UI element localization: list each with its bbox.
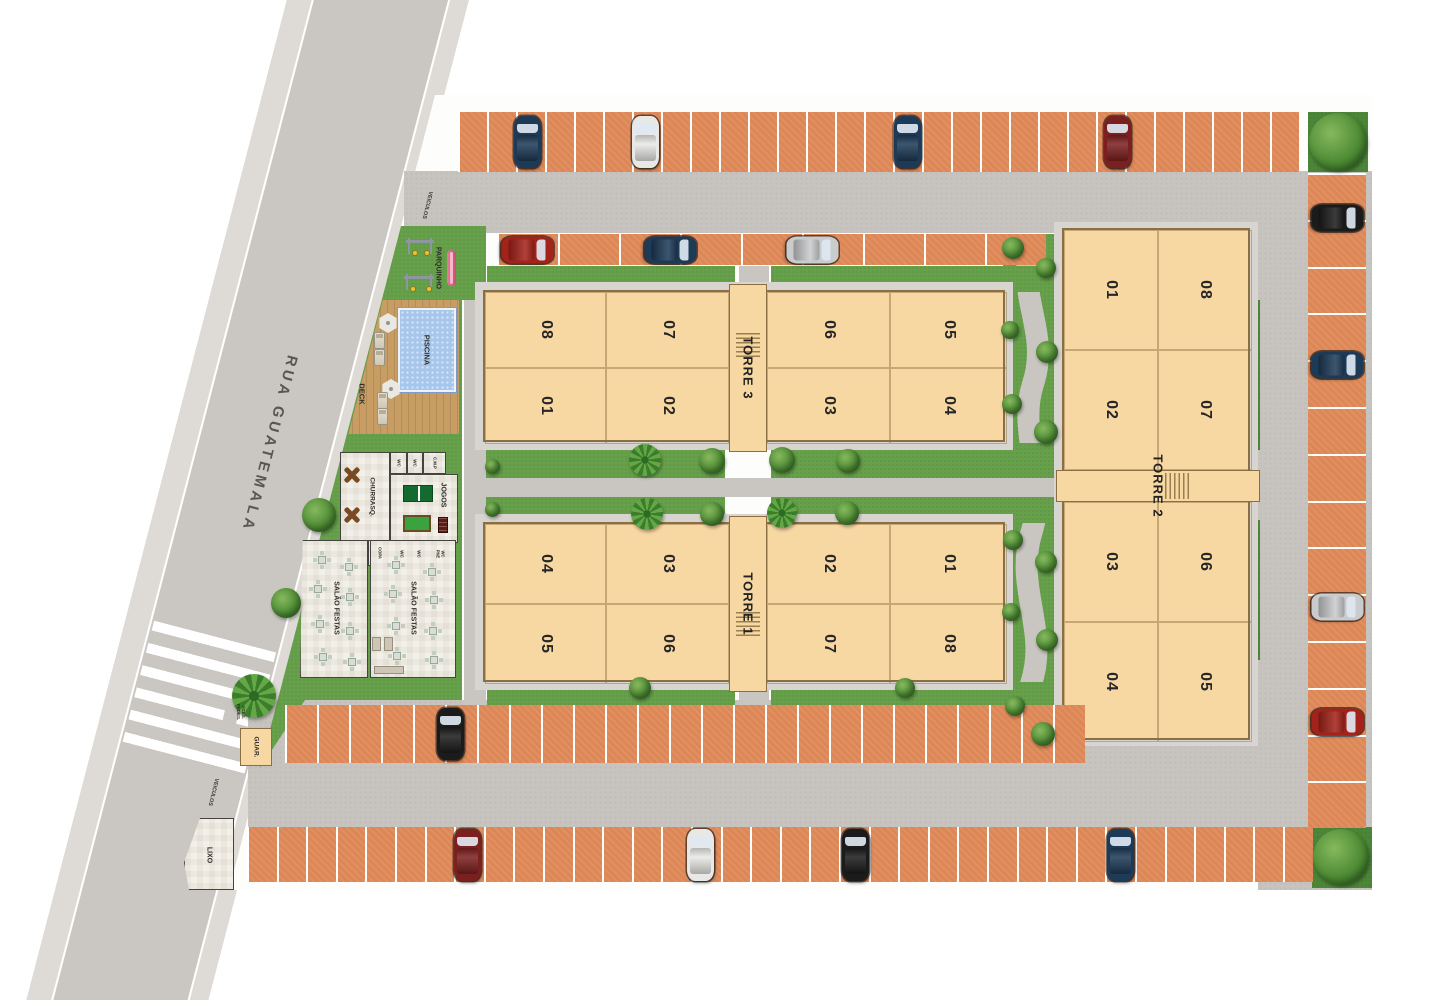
parking-stall [829,705,861,763]
parking-stall [381,705,413,763]
parking-stall [509,705,541,763]
site-plan: RUA GUATEMALA 08 07 06 05 01 02 03 04 [0,0,1439,1000]
tree-icon [1002,237,1024,259]
car-icon [842,829,869,881]
tree-icon [1036,629,1058,651]
parking-stall [893,705,925,763]
parking-stall [632,827,662,882]
parking-stall [980,112,1009,172]
car-icon [1107,829,1134,881]
car-icon [454,829,481,881]
wc-label: WC [417,550,422,558]
tree-icon [485,502,500,517]
parking-stall [1308,501,1366,548]
palm-tree-icon [631,498,663,530]
tower-name-label: TORRE 1 [741,572,756,635]
car-icon [1311,709,1363,736]
parking-stall [573,827,603,882]
party-table-icon [348,658,356,666]
tree-icon [1001,321,1019,339]
parking-stall [928,827,958,882]
tree-icon [1313,829,1369,885]
tree-icon [836,449,860,473]
parking-stall [1241,112,1270,172]
tree-icon [769,447,795,473]
parking-stall [1212,112,1241,172]
parking-stall [924,234,985,265]
parking-stall [869,827,899,882]
parking-stall [1009,112,1038,172]
wc-label: WC [413,459,418,467]
parking-stall [425,827,455,882]
car-icon [687,829,714,881]
playground-label: PARQUINHO [435,247,442,289]
parking-stall [1308,407,1366,454]
trash-label: LIXO [206,847,213,863]
parking-stall [1224,827,1254,882]
parking-stall [277,827,307,882]
car-icon [1311,594,1363,621]
parking-stall [1183,112,1212,172]
parking-stall [690,112,719,172]
parking-stall [863,234,924,265]
parking-stall [477,705,509,763]
parking-stall [513,827,543,882]
parking-stall [336,827,366,882]
tree-icon [1002,603,1020,621]
parking-stall [957,705,989,763]
party-table-icon [393,652,401,660]
tree-icon [485,459,500,474]
car-icon [514,116,541,168]
party-table-icon [314,585,322,593]
party-table-icon [346,593,354,601]
parking-stall [545,112,574,172]
parking-stall [1283,827,1313,882]
parking-stall [1046,827,1076,882]
party-table-icon [392,622,400,630]
parking-stall [317,705,349,763]
party-table-icon [318,556,326,564]
parking-stall [306,827,336,882]
party-table-icon [346,627,354,635]
party-table-icon [319,653,327,661]
parking-stall [558,234,619,265]
tree-icon [1309,113,1367,171]
tree-icon [1035,551,1057,573]
parking-stall [719,112,748,172]
parking-stall [1017,827,1047,882]
parking-stall [951,112,980,172]
party-table-icon [316,620,324,628]
car-icon [644,237,696,264]
parking-stall [1076,827,1106,882]
cmp-label: C.M.P [433,457,438,469]
parking-stall [484,827,514,882]
parking-stall [765,705,797,763]
party-table-icon [345,563,353,571]
pedestrian-access-label: ACES. PEDES. [235,701,245,723]
tree-icon [699,448,725,474]
party-hall-label: SALÃO FESTAS [333,581,340,635]
parking-stall [247,827,277,882]
tree-icon [1005,696,1025,716]
parking-stall [1154,112,1183,172]
parking-stall [1194,827,1224,882]
parking-stall [1308,641,1366,688]
tree-icon [1036,258,1056,278]
parking-stall [541,705,573,763]
parking-stall [777,112,806,172]
parking-stall [637,705,669,763]
parking-stall [605,705,637,763]
party-table-icon [428,568,436,576]
car-icon [437,708,464,760]
parking-stall [1308,267,1366,314]
parking-stall [1308,454,1366,501]
tree-icon [1034,420,1058,444]
parking-stall [864,112,893,172]
tree-icon [302,498,336,532]
guard-label: GUAR. [253,737,260,758]
parking-stall [809,827,839,882]
parking-stall [1135,827,1165,882]
car-icon [786,237,838,264]
parking-stall [669,705,701,763]
parking-stall [987,827,1017,882]
wc-pne-label: WC PNE [435,548,444,560]
parking-stall [1308,547,1366,594]
parking-stall [458,112,487,172]
parking-stall [957,827,987,882]
tree-icon [1003,530,1023,550]
parking-stall [602,827,632,882]
parking-stall [748,112,777,172]
parking-stall [285,705,317,763]
parking-stall [1308,735,1366,782]
parking-stall [780,827,810,882]
party-table-icon [389,590,397,598]
party-table-icon [430,656,438,664]
parking-stall [922,112,951,172]
parking-stall [573,705,605,763]
parking-stall [797,705,829,763]
deck-label: DECK [358,383,367,404]
parking-stall [1067,112,1096,172]
barbecue-label: CHURRASQ. [369,477,376,516]
party-table-icon [430,596,438,604]
car-icon [894,116,921,168]
tree-icon [895,678,915,698]
parking-stall [1038,112,1067,172]
car-icon [1104,116,1131,168]
parking-stall [721,827,751,882]
car-icon [632,116,659,168]
parking-stall [661,112,690,172]
tree-icon [1031,722,1055,746]
pool-label: PISCINA [423,335,432,365]
parking-stall [395,827,425,882]
palm-tree-icon [767,498,797,528]
party-table-icon [392,561,400,569]
tree-icon [1002,394,1022,414]
parking-stall [701,705,733,763]
parking-stall [365,827,395,882]
parking-stall [1253,827,1283,882]
parking-stall [835,112,864,172]
parking-stall [733,705,765,763]
parking-stall [603,112,632,172]
parking-stall [1308,781,1366,828]
tree-icon [1036,341,1058,363]
parking-stall [1270,112,1299,172]
parking-stall [861,705,893,763]
pantry-label: COPA [378,547,383,559]
wc-label: WC [400,550,405,558]
tree-icon [629,677,651,699]
parking-stall [925,705,957,763]
parking-stall [806,112,835,172]
tower-name-label: TORRE 2 [1151,454,1166,517]
car-icon [501,237,553,264]
party-hall-label: SALÃO FESTAS [410,581,417,635]
parking-stall [487,112,516,172]
games-label: JOGOS [440,483,447,508]
party-table-icon [429,627,437,635]
parking-stall [898,827,928,882]
palm-tree-icon [629,444,661,476]
parking-stall [574,112,603,172]
tree-icon [271,588,301,618]
wc-label: WC [397,459,402,467]
parking-stall [750,827,780,882]
tree-icon [700,502,724,526]
tree-icon [835,501,859,525]
stairs-icon [1165,473,1189,499]
car-icon [1311,352,1363,379]
car-icon [1311,205,1363,232]
parking-stall [349,705,381,763]
parking-stall [1165,827,1195,882]
parking-stall [1053,705,1085,763]
tower-name-label: TORRE 3 [741,336,756,399]
parking-stall [543,827,573,882]
